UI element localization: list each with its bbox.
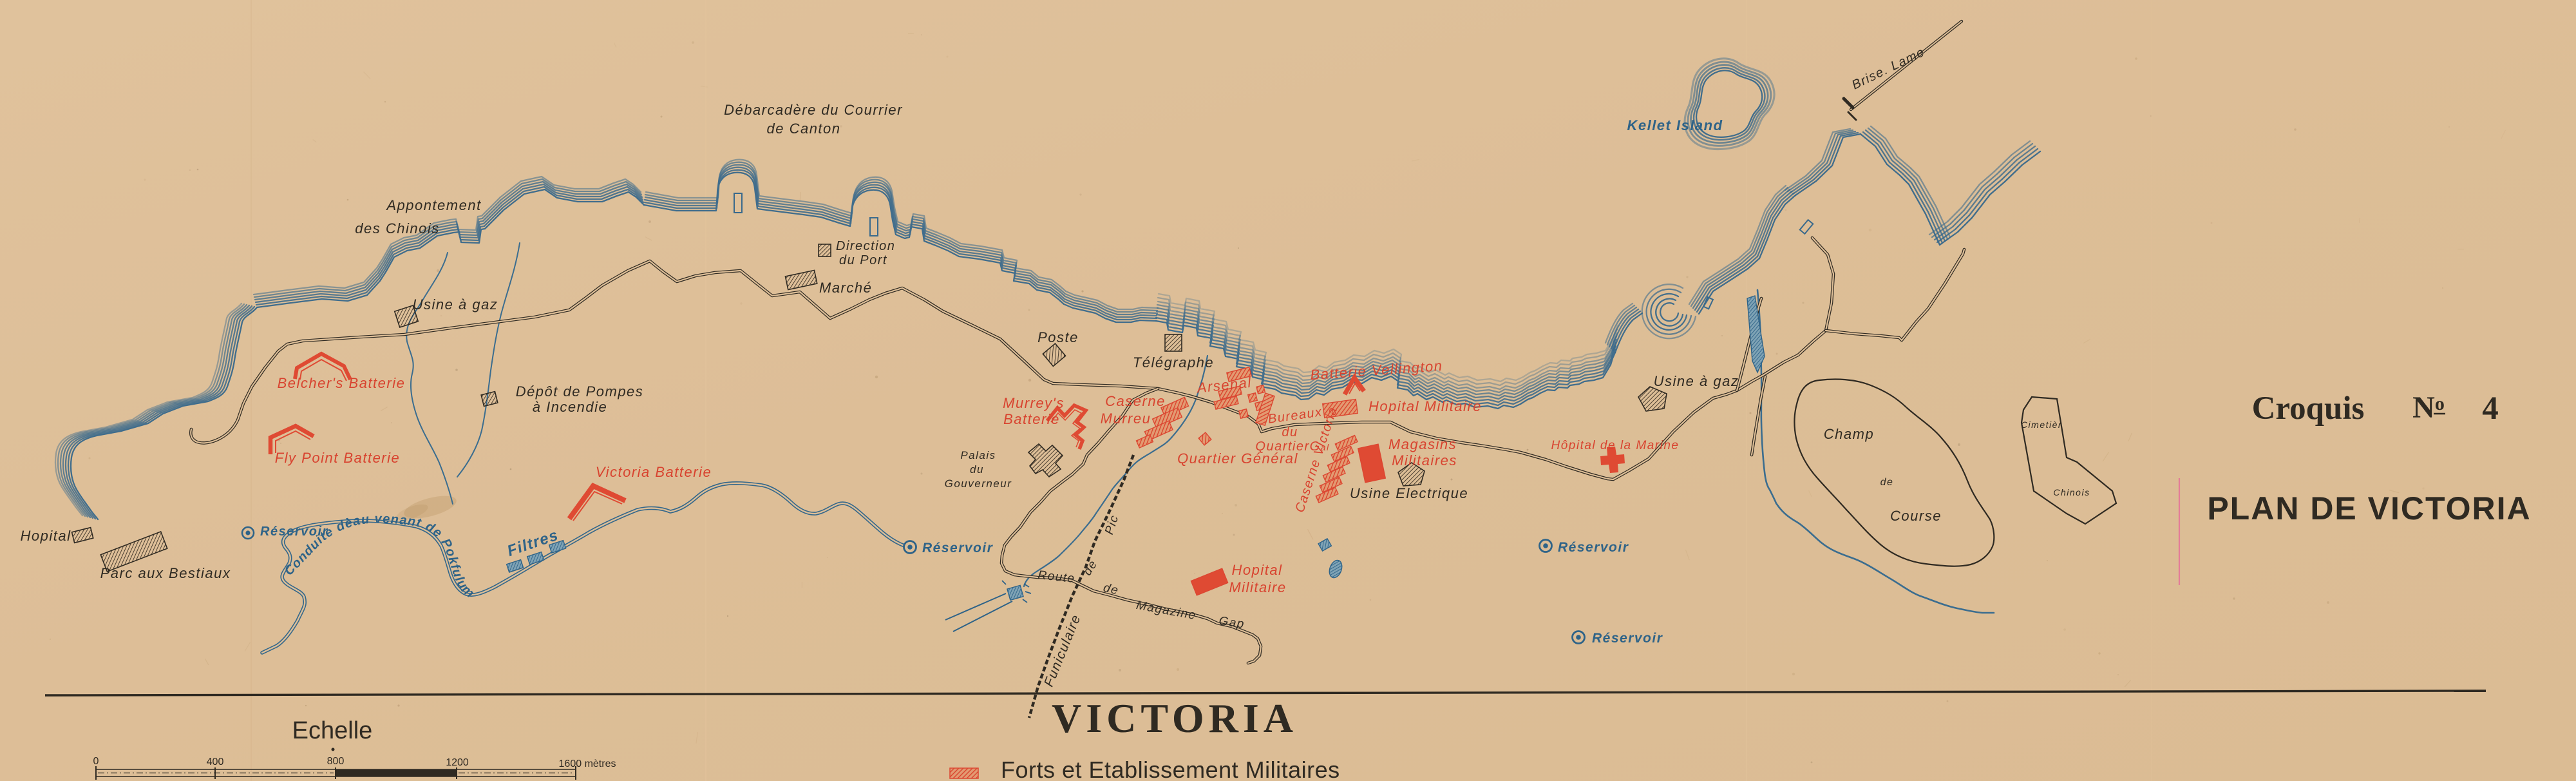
- svg-text:Champ: Champ: [1824, 426, 1874, 442]
- svg-text:Hopital: Hopital: [1232, 562, 1283, 578]
- svg-text:Caserne: Caserne: [1105, 393, 1166, 409]
- svg-text:PLAN DE VICTORIA: PLAN DE VICTORIA: [2207, 490, 2531, 526]
- svg-text:Hôpital de la Marine: Hôpital de la Marine: [1551, 439, 1680, 452]
- svg-text:de Canton: de Canton: [766, 121, 840, 137]
- svg-text:800: 800: [327, 756, 345, 767]
- svg-text:0: 0: [93, 756, 99, 767]
- svg-text:Militaires: Militaires: [1392, 452, 1457, 468]
- svg-text:Parc aux Bestiaux: Parc aux Bestiaux: [100, 565, 231, 581]
- svg-text:Hopital Militaire: Hopital Militaire: [1368, 398, 1482, 414]
- svg-text:Course: Course: [1890, 508, 1942, 524]
- svg-text:Gouverneur: Gouverneur: [945, 477, 1012, 490]
- svg-text:Palais: Palais: [960, 449, 996, 461]
- svg-text:Murreu: Murreu: [1101, 410, 1151, 427]
- svg-text:Murrey's: Murrey's: [1003, 395, 1065, 411]
- svg-text:Magasins: Magasins: [1388, 436, 1457, 452]
- svg-text:Télégraphe: Télégraphe: [1133, 354, 1214, 371]
- svg-text:4: 4: [2482, 391, 2499, 427]
- svg-text:VICTORIA: VICTORIA: [1052, 695, 1298, 741]
- svg-text:du: du: [1282, 425, 1298, 439]
- svg-text:Kellet Island: Kellet Island: [1627, 117, 1723, 133]
- svg-text:Appontement: Appontement: [385, 197, 481, 213]
- svg-text:Forts et Etablissement Militai: Forts et Etablissement Militaires: [1001, 757, 1340, 781]
- svg-text:Echelle: Echelle: [292, 717, 373, 744]
- svg-text:Poste: Poste: [1037, 329, 1079, 345]
- svg-text:1200: 1200: [446, 757, 469, 768]
- svg-text:Usine Electrique: Usine Electrique: [1350, 485, 1468, 501]
- svg-text:Marché: Marché: [819, 280, 872, 296]
- svg-text:Réservoir: Réservoir: [1558, 540, 1629, 555]
- svg-text:Hopital: Hopital: [21, 528, 71, 544]
- svg-text:Dépôt de Pompes: Dépôt de Pompes: [516, 383, 644, 400]
- svg-text:Belcher's Batterie: Belcher's Batterie: [278, 375, 406, 391]
- svg-text:Direction: Direction: [836, 239, 895, 253]
- svg-text:Usine à gaz: Usine à gaz: [1654, 373, 1739, 389]
- svg-text:Militaire: Militaire: [1229, 579, 1286, 595]
- svg-text:Batterie: Batterie: [1003, 411, 1060, 427]
- svg-text:des Chinois: des Chinois: [355, 220, 439, 236]
- svg-text:Réservoir: Réservoir: [1592, 631, 1663, 646]
- svg-text:1600 mètres: 1600 mètres: [559, 758, 616, 769]
- svg-text:du Port: du Port: [839, 253, 887, 267]
- svg-text:Croquis: Croquis: [2252, 391, 2365, 427]
- svg-text:Chinois: Chinois: [2053, 487, 2090, 497]
- svg-text:Victoria Batterie: Victoria Batterie: [596, 464, 712, 480]
- svg-text:du: du: [970, 463, 984, 476]
- svg-text:Fly Point Batterie: Fly Point Batterie: [275, 450, 401, 466]
- svg-text:de: de: [1880, 477, 1894, 488]
- svg-text:Usine à gaz: Usine à gaz: [413, 296, 498, 313]
- svg-text:Réservoir: Réservoir: [922, 541, 994, 555]
- svg-text:400: 400: [207, 757, 224, 767]
- svg-text:à Incendie: à Incendie: [533, 399, 608, 415]
- svg-text:Quartier Général: Quartier Général: [1177, 450, 1298, 467]
- svg-text:Débarcadère du Courrier: Débarcadère du Courrier: [724, 102, 903, 118]
- svg-text:Cimetièr: Cimetièr: [2021, 419, 2062, 430]
